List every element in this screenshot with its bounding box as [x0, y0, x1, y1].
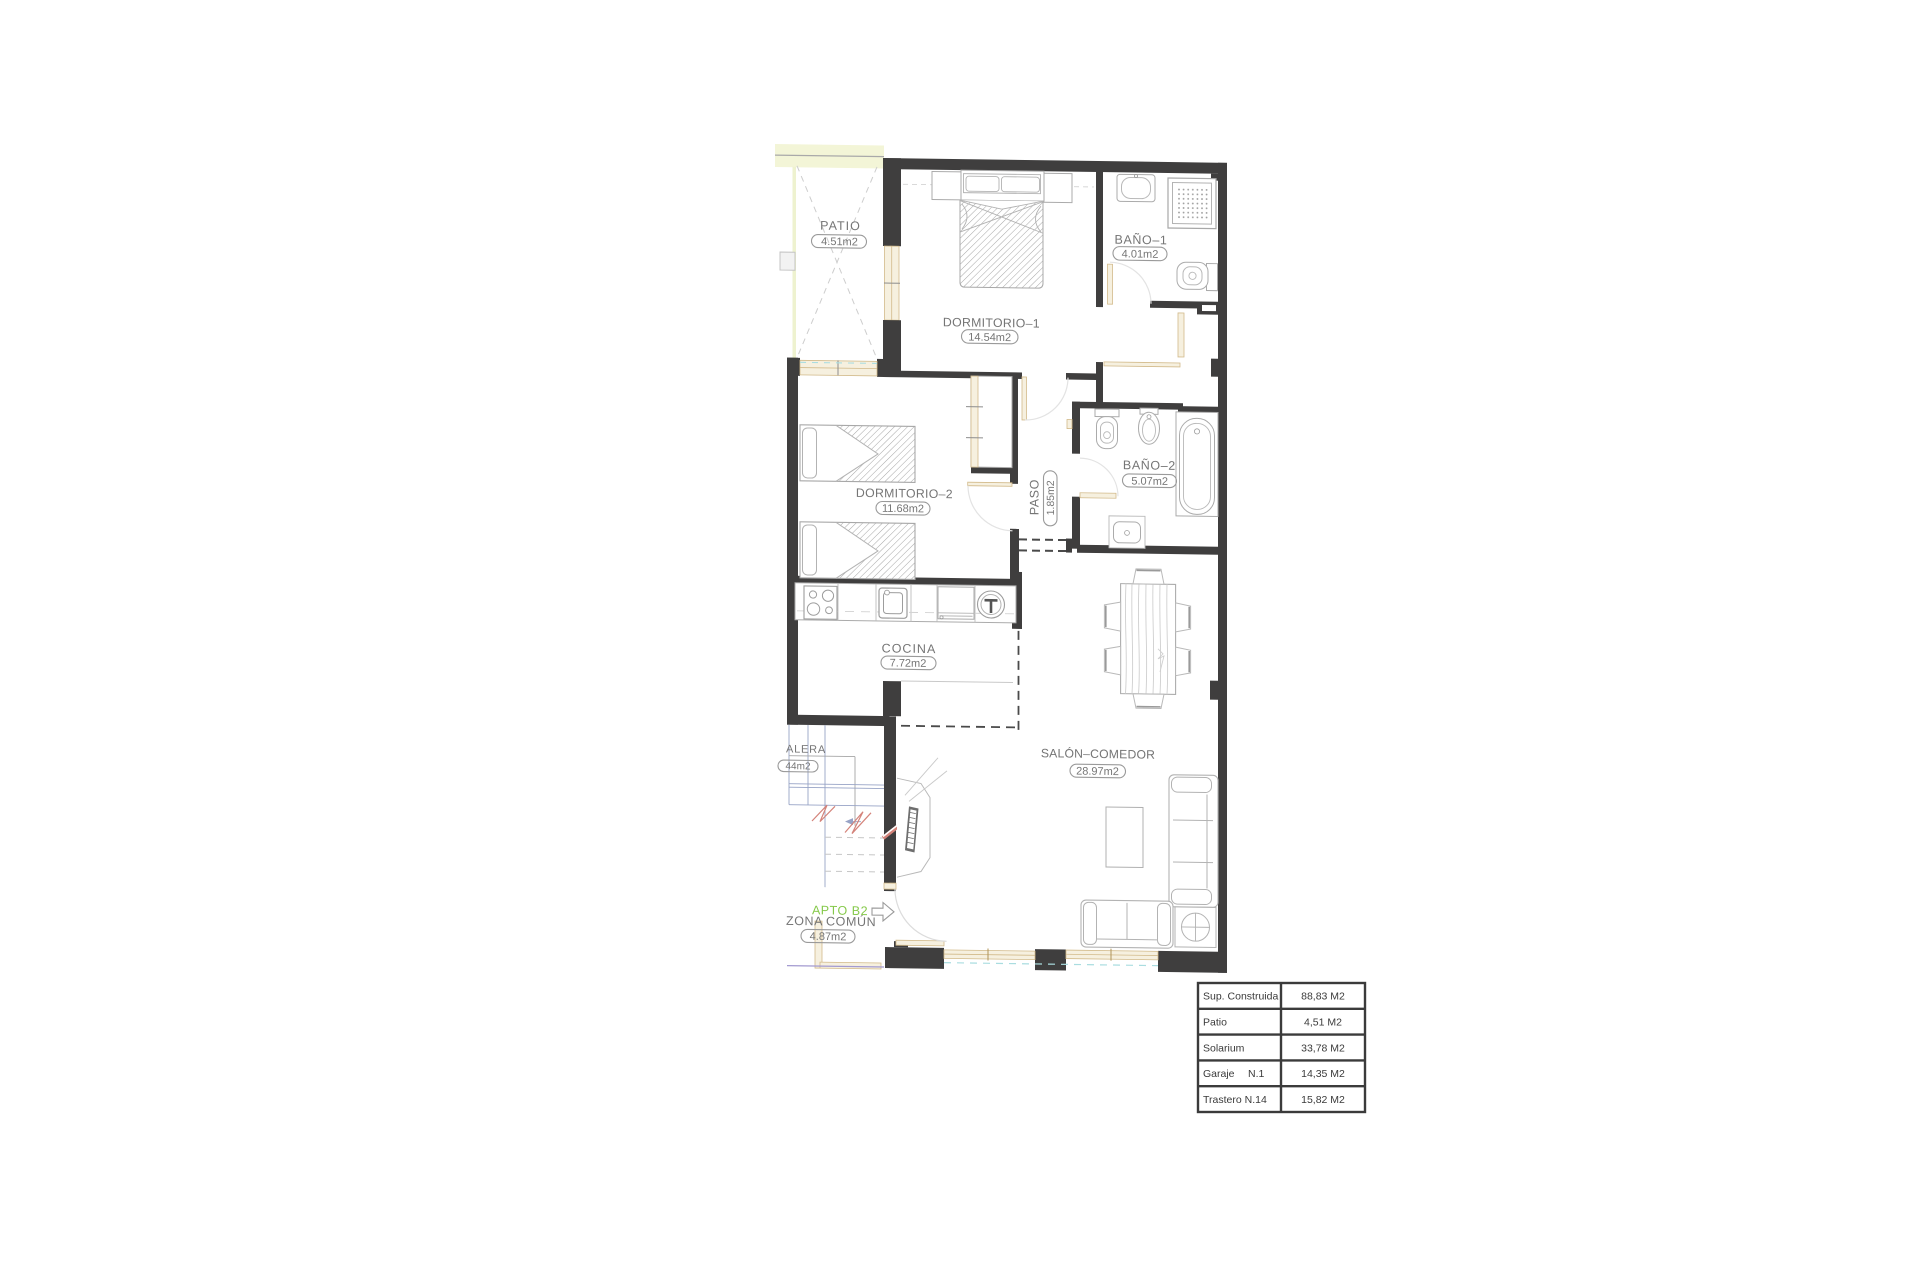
svg-text:COCINA: COCINA	[882, 641, 937, 656]
svg-text:Sup. Construida: Sup. Construida	[1203, 991, 1278, 1003]
svg-text:Trastero N.14: Trastero N.14	[1203, 1094, 1267, 1106]
svg-text:11.68m2: 11.68m2	[882, 503, 924, 516]
svg-text:Garaje: Garaje	[1203, 1068, 1235, 1080]
svg-text:14.54m2: 14.54m2	[968, 331, 1011, 344]
svg-text:SALÓN–COMEDOR: SALÓN–COMEDOR	[1041, 745, 1155, 762]
svg-text:4.51m2: 4.51m2	[821, 236, 858, 249]
svg-text:4.01m2: 4.01m2	[1122, 248, 1159, 261]
svg-text:N.1: N.1	[1248, 1068, 1265, 1080]
svg-text:15,82 M2: 15,82 M2	[1301, 1094, 1345, 1106]
svg-text:1.85m2: 1.85m2	[1045, 480, 1057, 515]
svg-text:Solarium: Solarium	[1203, 1042, 1245, 1054]
svg-text:DORMITORIO–2: DORMITORIO–2	[856, 486, 953, 501]
svg-text:88,83 M2: 88,83 M2	[1301, 991, 1345, 1003]
svg-text:44m2: 44m2	[785, 761, 810, 772]
svg-text:5.07m2: 5.07m2	[1131, 475, 1168, 488]
svg-text:ZONA: ZONA	[786, 914, 823, 929]
svg-text:33,78 M2: 33,78 M2	[1301, 1042, 1345, 1054]
svg-text:Patio: Patio	[1203, 1017, 1227, 1029]
svg-text:PATIO: PATIO	[820, 219, 861, 234]
svg-text:4,51 M2: 4,51 M2	[1304, 1017, 1342, 1029]
svg-text:DORMITORIO–1: DORMITORIO–1	[943, 315, 1040, 330]
svg-text:4.87m2: 4.87m2	[810, 931, 847, 944]
svg-text:PASO: PASO	[1028, 479, 1042, 515]
svg-text:14,35 M2: 14,35 M2	[1301, 1068, 1345, 1080]
svg-text:BAÑO–1: BAÑO–1	[1115, 233, 1168, 248]
svg-text:28.97m2: 28.97m2	[1076, 766, 1119, 779]
svg-text:ALERA: ALERA	[786, 743, 826, 756]
svg-text:COMÚN: COMÚN	[826, 913, 876, 929]
svg-text:7.72m2: 7.72m2	[890, 657, 927, 670]
svg-text:BAÑO–2: BAÑO–2	[1123, 458, 1176, 473]
